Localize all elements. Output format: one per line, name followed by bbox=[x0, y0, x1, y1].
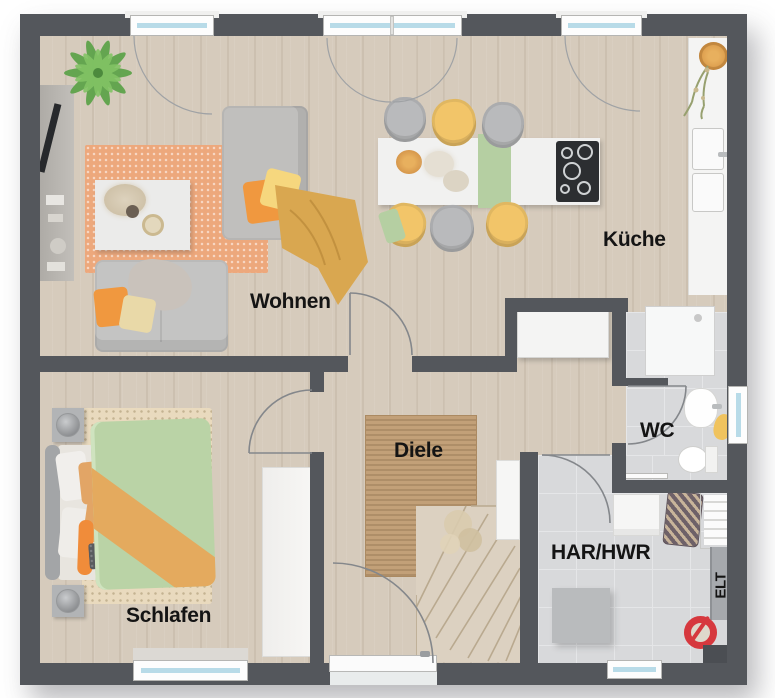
room-label-wc: WC bbox=[640, 419, 674, 443]
room-label-schlafen: Schlafen bbox=[126, 604, 211, 628]
room-label-diele: Diele bbox=[394, 439, 443, 463]
swing-arcs-overlay bbox=[0, 0, 775, 698]
floor-plan: Wohnen Küche Schlafen Diele WC HAR/HWR E… bbox=[0, 0, 775, 698]
room-label-elt: ELT bbox=[713, 566, 730, 606]
room-label-kueche: Küche bbox=[603, 228, 666, 252]
room-label-har-hwr: HAR/HWR bbox=[551, 541, 650, 565]
room-label-wohnen: Wohnen bbox=[250, 290, 331, 314]
